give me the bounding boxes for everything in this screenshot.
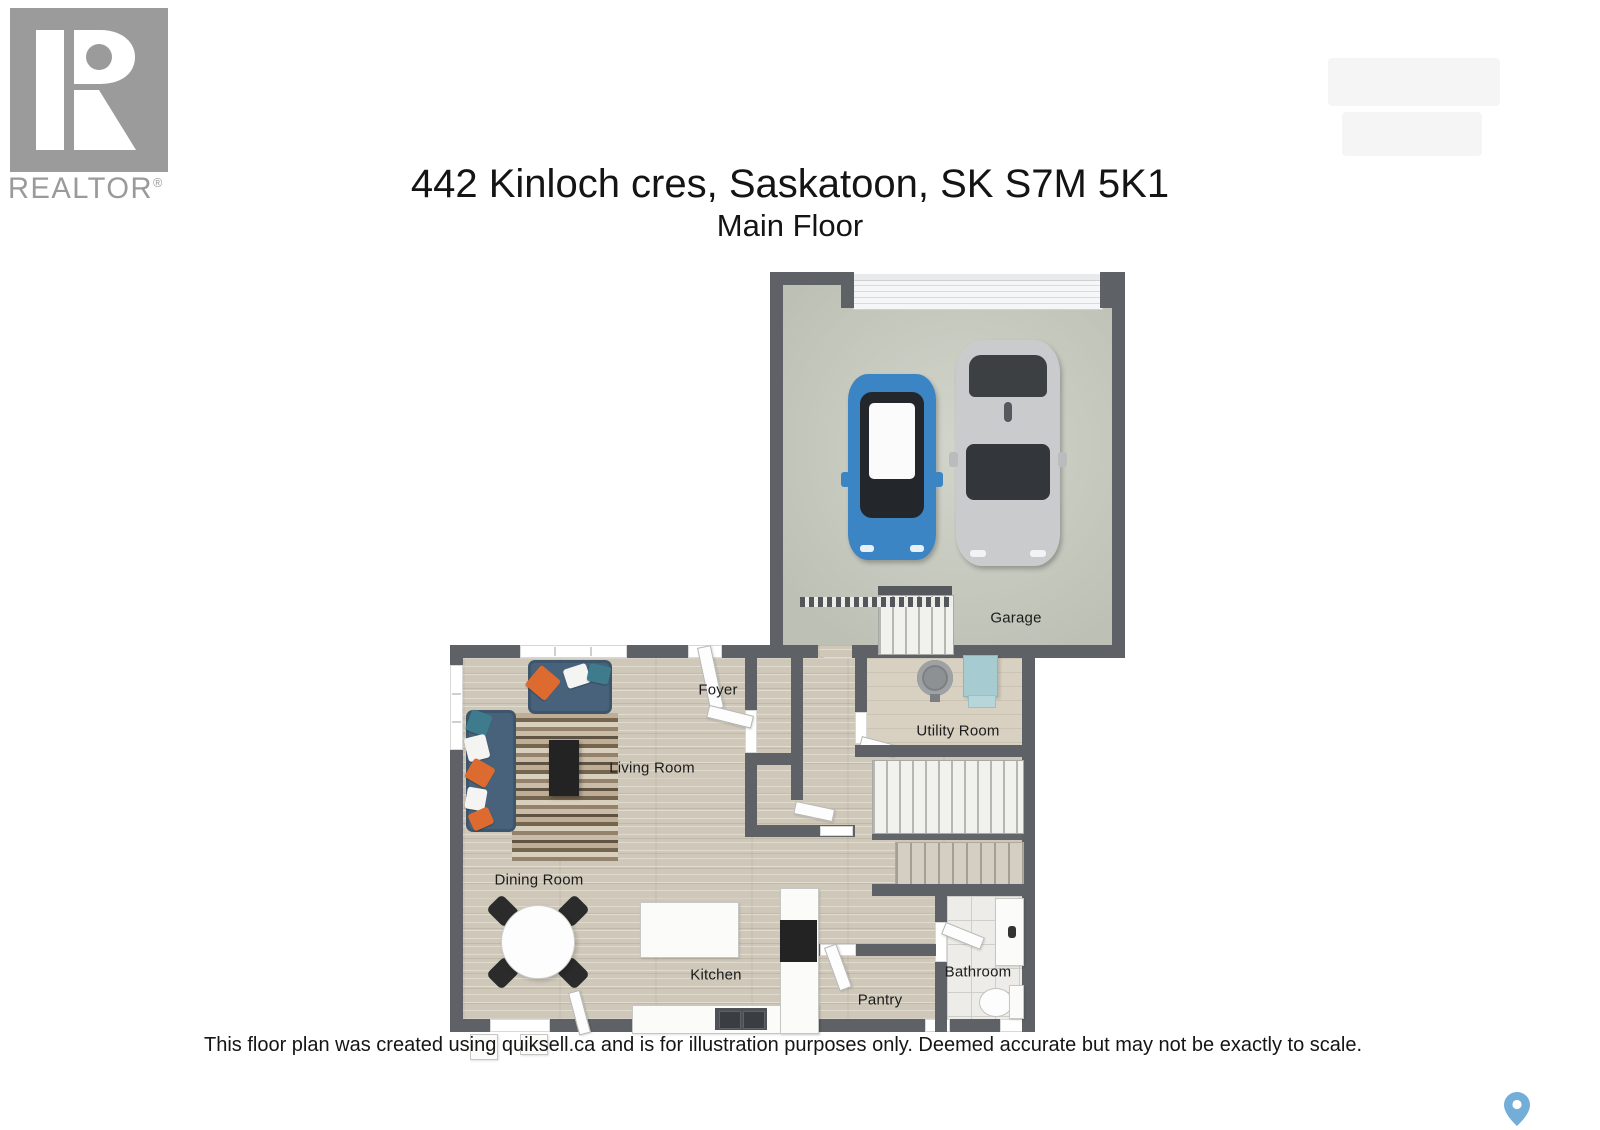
realtor-logo-icon — [10, 8, 168, 177]
wall-stub — [841, 272, 854, 308]
stair-railing — [872, 834, 1022, 840]
wall-segment — [855, 745, 1035, 757]
sink-basin — [719, 1011, 741, 1029]
car-silver-windshield — [966, 444, 1050, 500]
stairs-lower-flight — [895, 842, 1024, 886]
stairs-upper-flight — [872, 760, 1024, 834]
wall-segment — [770, 645, 818, 658]
room-label-kitchen: Kitchen — [690, 967, 741, 984]
disclaimer-text: This floor plan was created using quikse… — [0, 1034, 1566, 1057]
window — [450, 665, 463, 750]
wall-segment — [745, 658, 757, 710]
car-mirror — [949, 452, 958, 467]
kitchen-sink — [715, 1008, 767, 1030]
room-label-living-room: Living Room — [609, 760, 695, 777]
sink-basin — [743, 1011, 765, 1029]
stair-railing — [800, 597, 952, 607]
doorway-threshold — [818, 645, 852, 658]
wall-stub — [1100, 272, 1113, 308]
car-mirror — [841, 472, 850, 487]
wall-segment — [722, 645, 770, 658]
stove — [780, 920, 817, 962]
headlight — [860, 545, 874, 552]
wall-segment — [855, 658, 867, 712]
window — [520, 645, 627, 658]
closet-door — [820, 826, 853, 836]
headlight — [1030, 550, 1046, 557]
wall-segment — [627, 645, 688, 658]
headlight — [970, 550, 986, 557]
garage-door — [853, 280, 1103, 310]
watermark — [1328, 58, 1500, 106]
room-label-dining-room: Dining Room — [495, 872, 584, 889]
room-label-garage: Garage — [990, 610, 1041, 627]
dining-table — [501, 905, 575, 979]
room-label-utility-room: Utility Room — [916, 723, 999, 740]
coffee-table — [549, 740, 579, 796]
water-heater-pipe — [930, 694, 940, 702]
watermark — [1342, 112, 1482, 156]
car-blue-sunroof — [869, 403, 915, 479]
faucet — [1008, 926, 1016, 938]
wall-segment — [450, 1019, 490, 1032]
car-silver-rear-window — [969, 355, 1047, 397]
toilet-tank — [1009, 985, 1024, 1019]
car-mirror — [934, 472, 943, 487]
car-silver — [956, 340, 1060, 566]
map-pin-icon — [1504, 1092, 1530, 1130]
floor-plan-page: REALTOR® 442 Kinloch cres, Saskatoon, SK… — [0, 0, 1600, 1130]
back-doorway — [490, 1019, 550, 1032]
wall-segment — [872, 884, 1035, 896]
car-silver-antenna — [1004, 402, 1012, 422]
page-title: 442 Kinloch cres, Saskatoon, SK S7M 5K1 — [0, 162, 1580, 207]
room-label-foyer: Foyer — [698, 682, 737, 699]
wall-segment — [950, 1019, 1000, 1032]
furnace-base — [968, 695, 996, 708]
headlight — [910, 545, 924, 552]
wall-segment — [770, 272, 783, 658]
wall-segment — [791, 658, 803, 800]
wall-segment — [1112, 272, 1125, 658]
car-blue — [848, 374, 936, 560]
water-heater — [917, 660, 953, 696]
page-subtitle: Main Floor — [0, 208, 1580, 244]
car-mirror — [1058, 452, 1067, 467]
toilet-bowl — [979, 988, 1013, 1017]
furnace — [963, 655, 998, 697]
wall-segment — [935, 896, 947, 922]
room-label-bathroom: Bathroom — [945, 964, 1012, 981]
kitchen-island — [640, 902, 739, 958]
stair-edge — [878, 586, 952, 595]
room-label-pantry: Pantry — [858, 992, 903, 1009]
wall-segment — [856, 944, 936, 956]
